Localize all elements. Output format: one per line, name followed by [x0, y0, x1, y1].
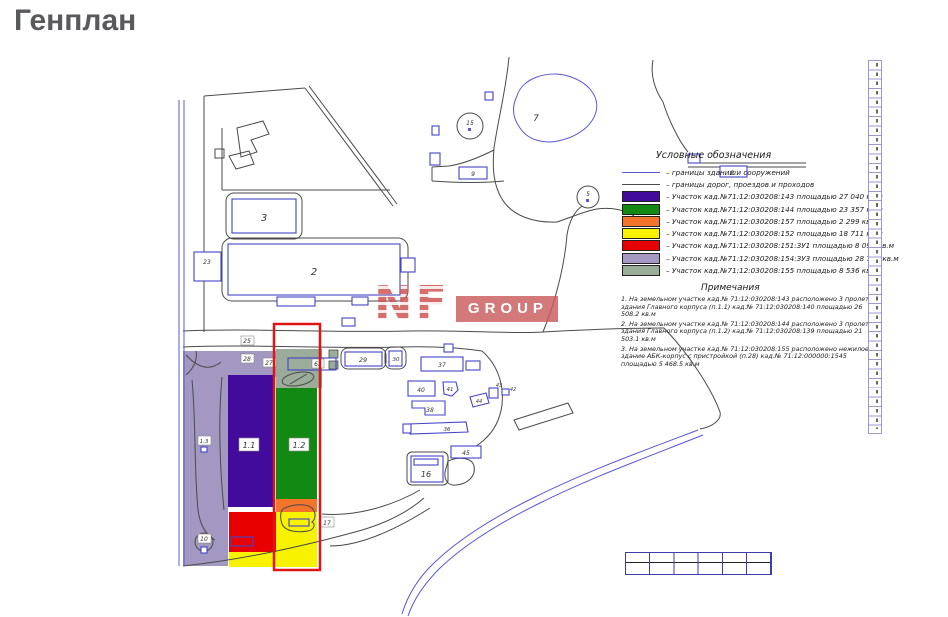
legend-row-buildings-border: – границы зданий и сооружений: [622, 166, 872, 178]
genplan-page: Генплан: [0, 0, 948, 617]
purple-swatch: [622, 191, 660, 202]
legend-row-roads-border: – границы дорог, проездов и проходов: [622, 178, 872, 190]
svg-text:28: 28: [243, 356, 251, 363]
notes-title: Примечания: [701, 283, 877, 293]
legend-item-155: – Участок кад.№71:12:030208:155 площадью…: [622, 264, 872, 276]
lavender-swatch: [622, 253, 660, 264]
zone-sage-sq2: [329, 361, 338, 369]
long-building: [514, 403, 573, 430]
label-building-2: 2: [311, 267, 317, 278]
zone-yellow-main: [276, 512, 317, 567]
coordinate-strip-marks: [876, 63, 878, 429]
note-1: 1. На земельном участке кад.№ 71:12:0302…: [621, 296, 877, 319]
legend-item-154-zu3: – Участок кад.№71:12:030208:154:ЗУ3 площ…: [622, 252, 872, 264]
dark-line-swatch: [622, 184, 660, 185]
tank-near-16: [445, 458, 474, 485]
legend-item-157: – Участок кад.№71:12:030208:157 площадью…: [622, 215, 872, 227]
label-tower-5: 5: [586, 191, 590, 198]
orange-swatch: [622, 216, 660, 227]
label-zone-1-1: 1.1: [243, 441, 256, 450]
legend-title: Условные обозначения: [656, 150, 872, 161]
legend-item-152: – Участок кад.№71:12:030208:152 площадью…: [622, 227, 872, 239]
building-23: [194, 252, 221, 281]
svg-text:38: 38: [426, 407, 434, 414]
building-43: [489, 388, 498, 398]
green-swatch: [622, 204, 660, 215]
yellow-swatch: [622, 228, 660, 239]
svg-text:40: 40: [417, 387, 425, 394]
svg-text:9: 9: [471, 171, 475, 178]
blue-line-swatch: [622, 172, 660, 173]
river: [402, 430, 698, 614]
svg-text:43: 43: [496, 383, 502, 389]
building-36: [408, 422, 468, 434]
red-swatch: [622, 240, 660, 251]
legend-item-143: – Участок кад.№71:12:030208:143 площадью…: [622, 191, 872, 203]
svg-text:1.3: 1.3: [200, 439, 209, 445]
label-tower-15: 15: [466, 120, 474, 127]
label-building-23: 23: [203, 259, 211, 266]
pond-outline: [514, 74, 597, 142]
svg-text:36: 36: [444, 427, 451, 433]
label-pond-7: 7: [533, 114, 539, 124]
label-building-16: 16: [421, 470, 431, 479]
svg-text:25: 25: [243, 338, 251, 345]
label-tower-10: 10: [200, 536, 208, 543]
svg-text:42: 42: [510, 387, 516, 393]
coordinate-strip: [868, 60, 882, 434]
svg-text:45: 45: [462, 450, 470, 457]
svg-text:29: 29: [359, 356, 367, 364]
note-3: 3. На земельном участке кад.№ 71:12:0302…: [621, 346, 877, 369]
stamp-table: [625, 552, 772, 575]
svg-text:37: 37: [438, 362, 446, 369]
legend: Условные обозначения – границы зданий и …: [622, 150, 872, 277]
svg-text:41: 41: [447, 387, 454, 393]
label-building-3: 3: [261, 213, 267, 224]
legend-item-151-zu1: – Участок кад.№71:12:030208:151:ЗУ1 площ…: [622, 240, 872, 252]
zone-sage-sq1: [329, 350, 338, 358]
notes: Примечания 1. На земельном участке кад.№…: [621, 283, 877, 370]
zone-yellow-strip: [229, 552, 276, 567]
svg-text:44: 44: [476, 399, 482, 405]
building-42: [502, 389, 509, 395]
note-2: 2. На земельном участке кад.№ 71:12:0302…: [621, 321, 877, 344]
svg-text:30: 30: [393, 357, 400, 363]
sage-swatch: [622, 265, 660, 276]
label-zone-1-2: 1.2: [293, 441, 306, 450]
legend-item-144: – Участок кад.№71:12:030208:144 площадью…: [622, 203, 872, 215]
svg-text:27: 27: [265, 360, 273, 367]
svg-text:17: 17: [323, 520, 331, 527]
